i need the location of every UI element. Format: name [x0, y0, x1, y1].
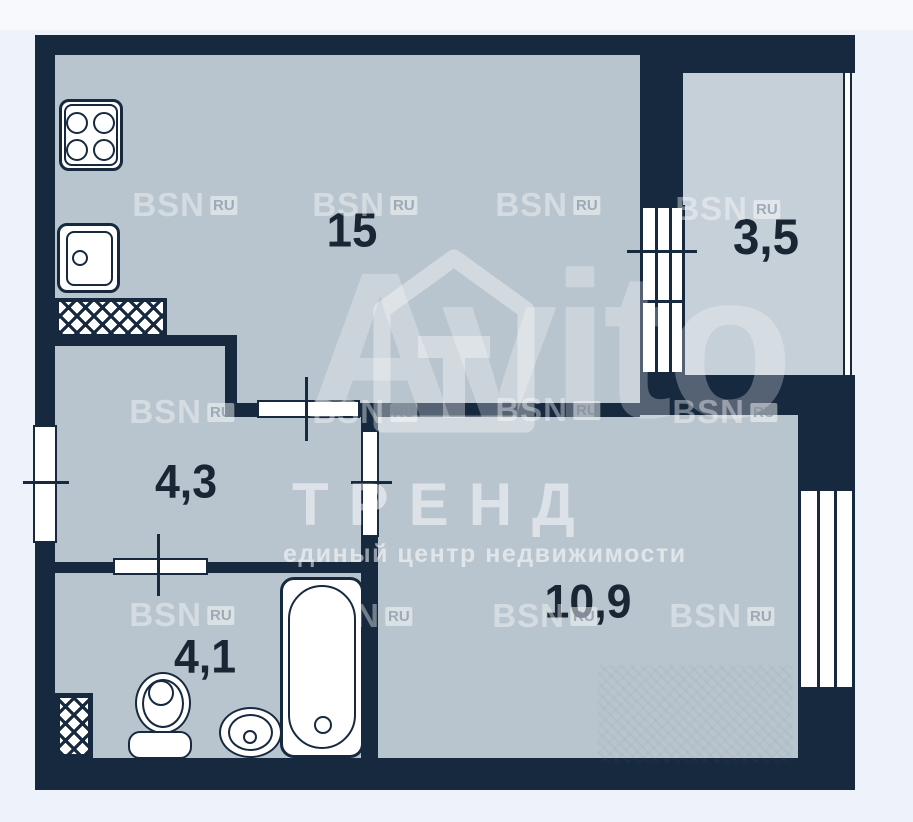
room-area-label-kitchen: 15: [327, 204, 378, 259]
balcony-window-tick: [627, 250, 697, 253]
balcony-outer-wall-thin: [843, 73, 852, 375]
wall-top-balcony: [683, 35, 855, 73]
bathroom-door: [113, 558, 208, 575]
floor-plan: 15 3,5 4,3 10,9 4,1 Avito ТРЕНД единый ц…: [0, 0, 913, 822]
room-door-tick: [351, 481, 392, 484]
wall-right-lower: [798, 690, 855, 758]
bathtub-drain: [314, 716, 332, 734]
page-background-band: [0, 0, 913, 30]
kitchen-sink-drain: [72, 250, 88, 266]
toilet-flush: [148, 680, 174, 706]
bedroom-window: [798, 488, 855, 690]
stove-burner: [66, 112, 88, 134]
wall-bottom: [35, 758, 855, 790]
room-area-label-hallway: 4,3: [155, 454, 217, 509]
wall-kitchen-step-vertical: [225, 335, 237, 417]
wall-mid-horizontal: [360, 403, 640, 417]
wall-bathroom-top-left: [55, 562, 113, 573]
kitchen-door-tick: [305, 377, 308, 441]
balcony-window: [640, 205, 685, 375]
washbasin-drain: [243, 730, 257, 744]
entrance-door-tick: [23, 481, 69, 484]
stove-burner: [93, 112, 115, 134]
wall-left: [35, 35, 55, 790]
wall-bathroom-top-right: [208, 562, 378, 573]
room-area-label-bathroom: 4,1: [174, 629, 236, 684]
wall-right-upper: [798, 415, 855, 488]
room-area-label-room: 10,9: [545, 574, 632, 629]
wall-balcony-bottom: [640, 375, 855, 415]
room-area-label-balcony: 3,5: [733, 208, 799, 266]
ventilation-shaft-hatch-kitchen: [55, 298, 167, 338]
entrance-door: [33, 425, 57, 543]
wall-balcony-divider: [640, 55, 683, 205]
bathroom-door-tick: [157, 534, 160, 596]
wall-top: [35, 35, 683, 55]
wall-mid-left-stub: [237, 403, 257, 417]
kitchen-door: [257, 400, 360, 418]
stove-burner: [66, 139, 88, 161]
stove-burner: [93, 139, 115, 161]
ventilation-shaft-hatch-bathroom: [55, 693, 93, 759]
toilet-base: [128, 731, 192, 759]
